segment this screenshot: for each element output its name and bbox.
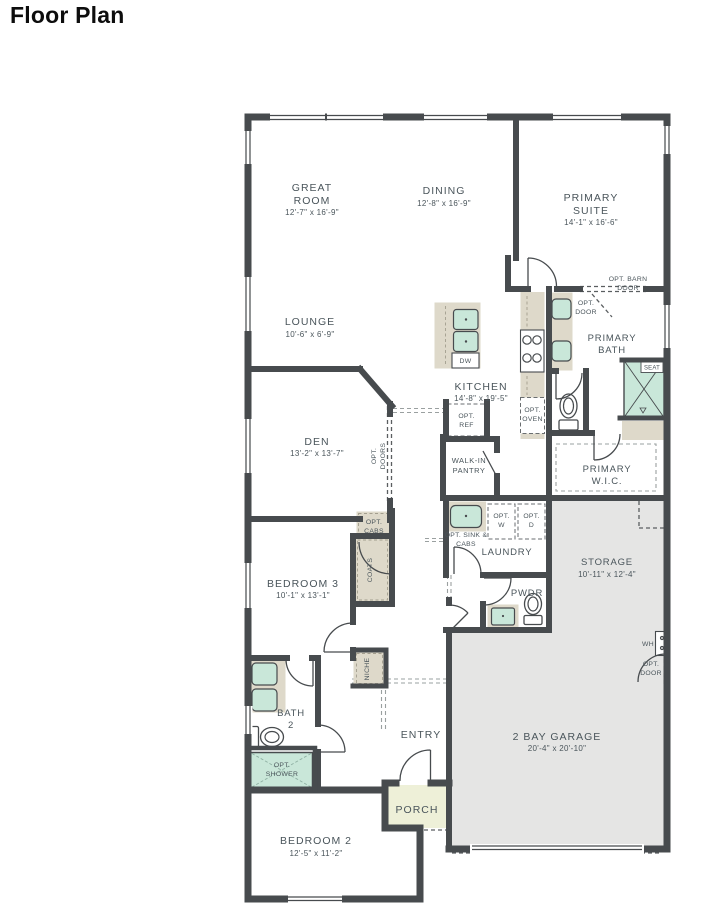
den-label: DEN [304,436,329,448]
window [270,113,621,122]
opt-sink-cabs-label: CABS [456,541,476,548]
niche-label: NICHE [364,658,371,681]
great-room-dims: 12'-7" x 16'-9" [285,208,339,217]
great-room-label: GREAT [292,182,332,194]
bedroom2-label: BEDROOM 2 [280,835,352,847]
shower-bench [622,421,665,440]
primary-wic-label: W.I.C. [592,476,623,487]
bath-sink-icon [552,299,571,319]
toilet-icon [261,728,284,747]
floor-plan: GREAT ROOM 12'-7" x 16'-9" DINING 12'-8"… [0,0,715,918]
opt-oven-label: OVEN [522,416,542,423]
opt-shower-label: OPT. [274,762,290,769]
pwdr-label: PWDR [511,588,543,599]
door-pwdr [484,578,511,605]
bedroom2-dims: 12'-5" x 11'-2" [289,849,342,858]
opt-oven-label: OPT. [524,407,540,414]
opt-cabs-label: OPT. [366,519,382,526]
storage-label: STORAGE [581,557,633,568]
hall-break [425,539,446,542]
seat-label: SEAT [644,366,660,372]
laundry-label: LAUNDRY [482,547,533,558]
faucet-dot [502,615,504,617]
dining-label: DINING [423,185,466,197]
porch-label: PORCH [396,804,439,816]
bath2-label: BATH [277,708,305,719]
great-room-label: ROOM [294,195,331,207]
primary-bath-label: PRIMARY [588,333,637,344]
dishwasher-label: DW [460,358,472,365]
entry-ceiling-break [382,683,386,731]
kitchen-dims: 14'-8" x 19'-5" [454,394,508,403]
kitchen-label: KITCHEN [454,381,507,393]
opt-dryer-label: OPT. [523,513,539,520]
lounge-dims: 10'-6" x 6'-9" [286,330,335,339]
door-bath-toilet [556,373,582,399]
dining-dims: 12'-8" x 16'-9" [417,199,471,208]
lounge-label: LOUNGE [285,316,335,328]
den-hall-break [393,409,443,413]
opt-door-bath-label: OPT. [578,300,594,307]
garage-dims: 20'-4" x 20'-10" [528,744,586,753]
window [288,895,342,904]
garage-label: 2 BAY GARAGE [513,731,602,743]
opt-washer-label: W [498,522,505,529]
opt-doors-label: OPT. [371,448,378,464]
opt-cabs-label: CABS [364,528,384,535]
wh-label: WH [642,641,654,648]
door-bath2-hall [318,725,345,752]
opt-ref-label: REF [459,422,474,429]
pantry-label: PANTRY [453,466,486,475]
garage-door [470,844,644,854]
bath-sink-icon [552,341,571,361]
primary-suite-label: PRIMARY [564,192,619,204]
bath2-label: 2 [288,720,294,731]
opt-sink-cabs-label: OPT. SINK & [445,532,488,539]
opt-washer-label: OPT. [493,513,509,520]
opt-shower-label: SHOWER [266,771,298,778]
opt-barn-door-label: OPT. BARN [609,276,648,283]
pantry-label: WALK-IN [452,456,486,465]
opt-door-garage-label: DOOR [640,670,662,677]
opt-door-bath-label: DOOR [575,309,597,316]
door-primary-wic [594,434,620,460]
opt-dryer-label: D [529,522,534,529]
door-bath2 [286,659,313,686]
faucet-dot [465,515,467,517]
toilet-icon [559,420,578,430]
opt-door-garage-label: OPT. [643,661,659,668]
bedroom3-dims: 10'-1" x 13'-1" [276,591,330,600]
opt-doors-label: DOORS [380,443,387,470]
door-bedroom3 [324,623,353,652]
door-front-entry [400,750,431,781]
bath2-sink-icon [252,689,277,711]
opt-ref-box [448,404,486,436]
bedroom3-label: BEDROOM 3 [267,578,339,590]
faucet-dot [465,340,467,342]
coats-label: COATS [367,558,374,583]
primary-suite-label: SUITE [573,205,609,217]
den-dims: 13'-2" x 13'-7" [290,449,344,458]
primary-wic-label: PRIMARY [583,464,632,475]
opt-barn-door-label: DOOR [617,285,639,292]
primary-suite-dims: 14'-1" x 16'-6" [564,218,618,227]
opt-doors-den [388,406,392,503]
faucet-dot [465,318,467,320]
primary-bath-label: BATH [598,345,626,356]
door-primary-suite [528,258,557,287]
entry-label: ENTRY [401,729,441,741]
storage-dims: 10'-11" x 12'-4" [578,570,636,579]
door-laundry [454,547,481,574]
toilet-icon [524,616,542,625]
opt-ref-label: OPT. [458,413,474,420]
bath2-sink-icon [252,663,277,685]
